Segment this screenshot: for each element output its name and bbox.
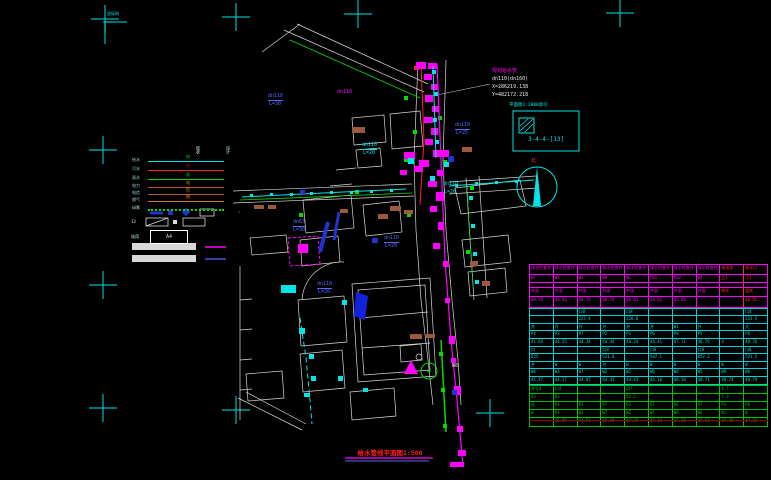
table-cell: 228.6 [625,316,649,323]
legend-line-tick: 污 [186,164,190,168]
pipe-label: dn63 [293,220,305,227]
legend-line-sample [148,201,224,202]
table-cell: 雨水口 [744,265,767,274]
table-row: 41.6444.5544.3444.4444.3444.4147.1148.79… [530,339,767,347]
table-cell: 44.43 [625,377,649,384]
table-cell: 污1 [744,275,767,282]
table-cell: W8 [673,369,697,376]
drawing-title: 给水管线平面图1:500 [344,447,436,457]
table-cell: W1 [649,410,673,417]
table-cell: P6 [673,402,697,409]
table-cell: P8 [673,331,697,338]
table-cell [720,331,744,338]
pipe-label: dn110(dn160) [492,77,528,82]
legend-line-sample [148,209,224,211]
table-cell [673,386,697,393]
table-cell: 排水检查井 [649,265,673,274]
pipe-label: dn110 [337,90,352,95]
table-cell: 井 [530,362,554,368]
table-cell [697,316,721,323]
table-bottom-border [529,420,768,421]
table-cell: 管底 [744,288,767,296]
table-cell: W4 [530,369,554,376]
table-row: 井号4口4口74.7 [530,386,767,394]
table-cell: 井 [601,324,625,330]
table-cell: 井面 [649,288,673,296]
table-cell [578,354,602,361]
table-cell [578,347,602,353]
table-cell: 4.7 [720,386,744,393]
table-cell: 井 [601,362,625,368]
table-row: WP4W3W7W2W1W6W6W1W [530,410,767,418]
paper-size-box: A4 [150,230,188,244]
table-section: 口8口8口8225.4228.6223.5井丹井井井井W1井大P4P3P7P2P… [529,308,768,385]
frame-corner-note: 坐标网 [107,11,119,17]
table-cell: 井 [697,324,721,330]
table-cell: 排水检查井 [554,265,578,274]
table-cell: 44.57 [554,377,578,384]
table-cell: W9 [720,369,744,376]
table-cell: D3 [554,394,578,401]
table-cell: 井面 [554,288,578,296]
table-cell: 44.10 [649,377,673,384]
table-row: 41.4744.5744.0744.4344.4344.1048.1048.71… [530,377,767,384]
table-cell [744,283,767,287]
table-cell: 4 [720,339,744,346]
pipe-label: 规划给水管 [492,69,517,74]
table-cell [625,283,649,287]
legend-item: 绿篱 [130,206,240,214]
paper-size-prefix: 选用 [131,234,139,240]
table-cell: 44.82 [649,297,673,307]
table-cell: 井面 [697,288,721,296]
table-cell: 44.44 [601,339,625,346]
table-cell: 225.4 [578,316,602,323]
table-cell: P1 [720,402,744,409]
table-cell: 48.81 [625,297,649,307]
table-row: 检P4P3P7P2P1P6P7P1P6 [530,402,767,410]
pipe-label: dn110 [362,143,377,150]
table-cell: 852.2 [697,354,721,361]
table-cell: 45 [530,394,554,401]
table-cell: W2 [601,369,625,376]
table-cell: P4 [530,331,554,338]
table-cell: P7 [601,402,625,409]
table-row: 井面井面井面井面井面井面井面井面原状管底 [530,288,767,297]
table-cell: 口8 [601,347,625,353]
brown-marks [254,127,490,339]
table-cell: 原状 [720,288,744,296]
table-cell: W9 [601,275,625,282]
blue-marks [300,156,457,395]
table-cell: W [744,410,767,417]
table-cell: 井号4 [530,386,554,393]
legend-angle-symbol: ∠ [238,210,240,214]
pipe-label: L=26 [318,290,330,295]
table-row: W4W3W7W2W1W6W8W5W9W6 [530,369,767,377]
table-cell: W1 [625,275,649,282]
legend-item: 污水污 [130,167,240,175]
table-cell: W7 [530,275,554,282]
table-cell: 井面 [601,288,625,296]
table-cell: 井面 [530,288,554,296]
elevation-table: 排水检查井排水检查井排水检查井排水检查井排水检查井排水检查井排水检查井排水检查井… [529,264,768,421]
table-cell: 44.34 [625,339,649,346]
table-cell: 井面 [578,288,602,296]
legend-item-label: 绿篱 [132,205,140,211]
pipe-label: L=20 [444,190,456,195]
pipe-label: X=286219.138 [492,85,528,90]
table-cell: W1 [720,410,744,417]
table-cell [601,283,625,287]
table-cell: W [530,410,554,417]
table-cell: P7 [697,402,721,409]
table-cell [625,354,649,361]
table-cell: W [697,362,721,368]
table-cell: 口8 [697,347,721,353]
table-cell [673,347,697,353]
north-label: 北 [531,157,536,164]
legend-item-label: 电信 [132,190,140,196]
index-box-title: 平面图1:2000索引 [509,102,548,108]
pipe-label: L=20 [363,151,375,156]
table-cell: 检 [530,402,554,409]
table-cell: W [625,362,649,368]
table-cell: W6 [649,369,673,376]
table-cell [649,386,673,393]
table-cell: 521.5 [744,354,767,361]
frame-corner-bracket [103,22,127,44]
table-cell: 44.07 [578,377,602,384]
table-cell: 排水检查井 [530,265,554,274]
table-cell [720,297,744,307]
legend-item: 给水给 [130,158,240,166]
table-cell [697,309,721,315]
table-cell: P1 [649,402,673,409]
table-row: 45D352.27.3 [530,394,767,402]
table-cell [720,324,744,330]
table-cell [554,309,578,315]
red-pipe [414,64,424,205]
table-cell [673,309,697,315]
pipe-label: dn110 [455,123,470,130]
table-cell [554,347,578,353]
table-cell: 531.0 [601,354,625,361]
table-cell [673,316,697,323]
title-underlines [345,458,433,461]
table-cell: W7 [601,410,625,417]
table-cell: 48.71 [697,377,721,384]
table-cell: W7 [578,369,602,376]
table-cell [697,386,721,393]
table-cell: 44.34 [578,339,602,346]
table-cell: P1 [625,331,649,338]
legend-item-label: 电力 [132,183,140,189]
table-row: 225.4228.6223.5 [530,316,767,324]
table-cell: 丹 [554,324,578,330]
table-cell: P2 [601,331,625,338]
table-cell [673,283,697,287]
legend-item-label: 污水 [132,166,140,172]
table-cell [601,394,625,401]
table-cell: W [649,362,673,368]
pipe-label: Y=482172.218 [492,93,528,98]
table-cell: 排水检查井 [697,265,721,274]
table-cell: W4 [697,275,721,282]
table-cell: 223.5 [744,316,767,323]
table-row: P4P3P7P2P1P6P8P5P6 [530,331,767,339]
table-row: D25531.0587.1852.2521.5 [530,354,767,362]
table-cell [649,394,673,401]
table-cell: W2 [578,275,602,282]
table-cell: W [578,362,602,368]
table-cell [530,309,554,315]
pipe-label: dn110 [268,94,283,101]
table-cell: 口8 [625,309,649,315]
table-cell: P4 [554,402,578,409]
table-cell [649,283,673,287]
table-cell: 43.84 [673,297,697,307]
table-cell [720,354,744,361]
table-cell: P3 [578,402,602,409]
table-cell: 41.64 [530,339,554,346]
index-box-code: 3-4-4-[13] [514,136,578,143]
pipe-label: dn110 [384,236,399,243]
legend-line-tick: 给 [186,155,190,159]
table-cell [744,386,767,393]
table-cell: W5 [697,369,721,376]
table-section: 排水检查井排水检查井排水检查井排水检查井排水检查井排水检查井排水检查井排水检查井… [529,264,768,308]
table-cell: 口8 [578,309,602,315]
pipe-label: L=30 [293,228,305,233]
table-row: W7W5W2W9W1P61P62W4品1污1 [530,275,767,283]
table-cell [578,386,602,393]
legend-sheet-number: 13 [131,219,136,224]
legend-item: 雨水雨 [130,176,240,184]
legend-line-tick: 电 [186,181,190,185]
table-cell [744,394,767,401]
table-cell [697,283,721,287]
table-cell: P6 [649,331,673,338]
table-cell: 48.79 [697,339,721,346]
table-cell [554,354,578,361]
table-cell: 口7 [625,386,649,393]
table-cell [601,316,625,323]
legend-col-header-design: 设计 [226,146,230,154]
table-cell: W3 [578,410,602,417]
table-cell: 排水检查井 [578,265,602,274]
table-cell [649,309,673,315]
table-cell: 排水检查井 [625,265,649,274]
legend-item-label: 燃气 [132,197,140,203]
pipe-label: L=30 [269,102,281,107]
table-cell: W [720,362,744,368]
table-cell: 48.85 [744,297,767,307]
legend-item-label: 雨水 [132,175,140,181]
cad-drawing-canvas[interactable]: 坐标网 北 平面图1:2000索引 3-4-4-[13] 给水管线平面图1:50… [0,0,771,480]
table-cell: W3 [554,369,578,376]
pipe-label: dn110 [443,182,458,187]
table-cell [578,394,602,401]
table-cell: 48.93 [554,297,578,307]
table-cell: 48.10 [673,377,697,384]
table-cell: 44.41 [649,339,673,346]
table-cell [720,283,744,287]
table-cell: W5 [554,275,578,282]
legend: 现状 设计 给水给污水污雨水雨电力电电信信燃气燃绿篱 ∠ [130,146,240,270]
table-cell [601,386,625,393]
table-cell: P3 [554,331,578,338]
table-cell [720,316,744,323]
table-row: 井WW井WWWWWW [530,362,767,369]
table-cell [649,316,673,323]
table-cell: W6 [744,369,767,376]
table-cell [625,347,649,353]
table-cell: 48.74 [530,297,554,307]
pipe-label: W8 [452,364,458,369]
table-cell: 口 [530,347,554,353]
table-cell: 47.11 [673,339,697,346]
table-cell: W [673,362,697,368]
table-cell [720,309,744,315]
table-row: 口8口8口8 [530,309,767,316]
table-cell: P6 [744,331,767,338]
table-cell: 52.2 [625,394,649,401]
table-cell: W2 [625,410,649,417]
table-cell [530,283,554,287]
table-row: 口口8口8口8口8 [530,347,767,354]
table-row: 48.7448.9348.7348.7948.8144.8243.8448.85 [530,297,767,307]
table-row: 井丹井井井井W1井大 [530,324,767,331]
table-cell: 44.43 [601,377,625,384]
table-cell: 41.47 [530,377,554,384]
table-cell: P62 [673,275,697,282]
table-cell: D25 [530,354,554,361]
table-cell: P6 [744,402,767,409]
table-cell: 接现状 [720,265,744,274]
sheet-index-box [513,111,579,151]
table-cell [530,316,554,323]
table-cell: 排水检查井 [601,265,625,274]
table-cell: W6 [673,410,697,417]
table-cell: 大 [744,324,767,330]
table-cell [578,283,602,287]
table-row: 排水检查井排水检查井排水检查井排水检查井排水检查井排水检查井排水检查井排水检查井… [530,265,767,275]
legend-line-tick: 雨 [186,173,190,177]
table-cell: 48.79 [601,297,625,307]
table-cell [554,316,578,323]
table-cell [554,283,578,287]
table-cell: P5 [697,331,721,338]
table-cell: P2 [625,402,649,409]
legend-item-label: 给水 [132,157,140,163]
table-cell: 587.1 [649,354,673,361]
table-cell: 口4 [554,386,578,393]
table-cell: 口8 [649,347,673,353]
table-cell: 口8 [744,347,767,353]
table-cell: 井面 [625,288,649,296]
table-cell: 排水检查井 [673,265,697,274]
table-cell: W [554,362,578,368]
north-arrow [517,167,557,207]
table-cell: 品1 [720,275,744,282]
table-cell: 井面 [673,288,697,296]
legend-item: 燃气燃 [130,198,240,206]
table-cell [673,394,697,401]
table-cell [697,297,721,307]
table-cell [720,347,744,353]
table-cell: W6 [697,410,721,417]
table-cell [697,394,721,401]
table-cell: P61 [649,275,673,282]
pipe-label: dn110 [317,282,332,289]
table-cell [601,309,625,315]
table-cell: W [744,362,767,368]
table-cell: 44.55 [554,339,578,346]
legend-col-header-existing: 现状 [196,146,200,154]
table-cell: 48.79 [744,377,767,384]
table-cell: 48.76 [744,339,767,346]
table-cell: W1 [625,369,649,376]
table-cell: P4 [554,410,578,417]
pipe-label: L=20 [385,244,397,249]
table-cell: 井 [530,324,554,330]
legend-line-tick: 信 [186,188,190,192]
table-cell: P7 [578,331,602,338]
pipe-label: L=25 [456,131,468,136]
table-cell: 7.3 [720,394,744,401]
legend-line-sample [148,170,224,171]
table-cell: 48.74 [720,377,744,384]
table-cell: 井 [625,324,649,330]
table-cell: 48.73 [578,297,602,307]
table-cell: 口8 [744,309,767,315]
table-cell [673,354,697,361]
table-cell: W1 [673,324,697,330]
table-cell: 井 [649,324,673,330]
legend-line-sample [148,161,224,162]
table-cell: 井 [578,324,602,330]
legend-line-tick: 燃 [186,195,190,199]
